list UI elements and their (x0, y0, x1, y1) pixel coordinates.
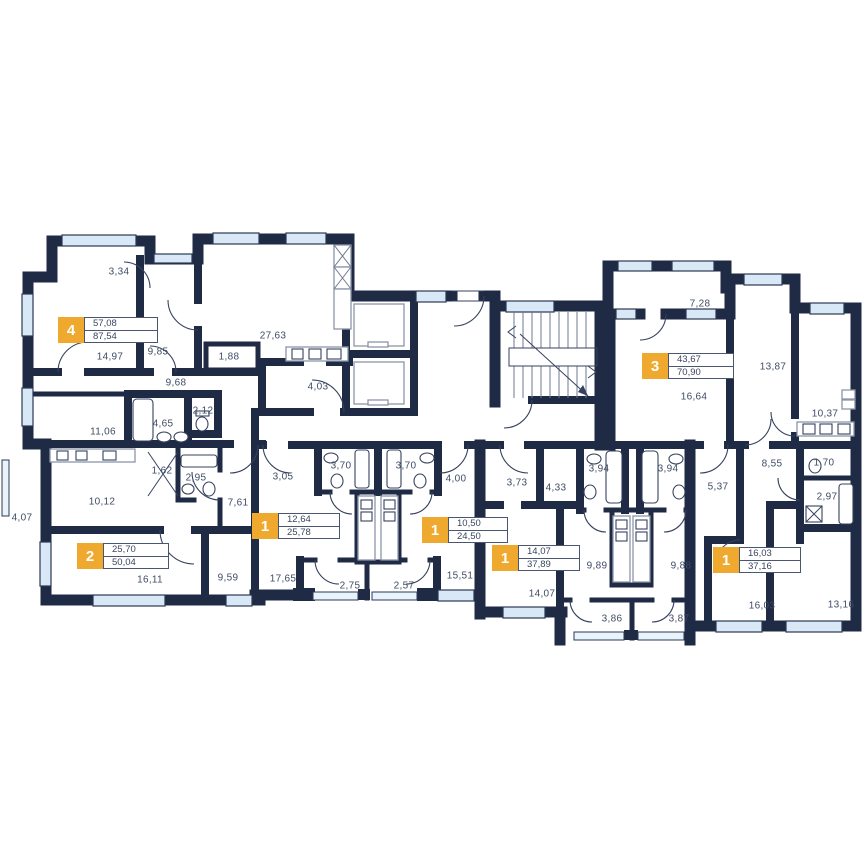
floor-plan-drawing (0, 0, 864, 864)
living-area-value: 25,70 (104, 544, 168, 557)
living-area-value: 12,64 (279, 514, 339, 527)
apartment-badge-1a[interactable]: 1 12,64 25,78 (252, 513, 340, 539)
total-area-value: 24,50 (449, 531, 507, 543)
living-area-value: 16,03 (740, 548, 800, 561)
apartment-number: 2 (77, 543, 103, 569)
total-area-value: 25,78 (279, 527, 339, 539)
total-area-value: 37,89 (519, 559, 579, 571)
total-area-value: 50,04 (104, 557, 168, 569)
apartment-badge-4[interactable]: 4 57,08 87,54 (58, 317, 158, 343)
apartment-number: 4 (58, 317, 84, 343)
apartment-number: 1 (252, 513, 278, 539)
apartment-number: 1 (713, 547, 739, 573)
living-area-value: 14,07 (519, 546, 579, 559)
apartment-number: 1 (492, 545, 518, 571)
closet-1-88 (206, 344, 258, 370)
living-area-value: 43,67 (669, 354, 733, 367)
apartment-badge-3[interactable]: 3 43,67 70,90 (642, 353, 734, 379)
apartment-badge-2[interactable]: 2 25,70 50,04 (77, 543, 169, 569)
apartment-badge-1b[interactable]: 1 10,50 24,50 (422, 517, 508, 543)
living-area-value: 57,08 (85, 318, 157, 331)
total-area-value: 37,16 (740, 561, 800, 573)
apartment-badge-1c[interactable]: 1 14,07 37,89 (492, 545, 580, 571)
staircase-icon (508, 312, 597, 398)
apartment-number: 3 (642, 353, 668, 379)
total-area-value: 87,54 (85, 331, 157, 343)
floor-plan-page: 3,34 14,97 9,85 27,63 1,88 9,68 4,03 4,6… (0, 0, 864, 864)
apartment-number: 1 (422, 517, 448, 543)
total-area-value: 70,90 (669, 367, 733, 379)
apartment-badge-1d[interactable]: 1 16,03 37,16 (713, 547, 801, 573)
living-area-value: 10,50 (449, 518, 507, 531)
